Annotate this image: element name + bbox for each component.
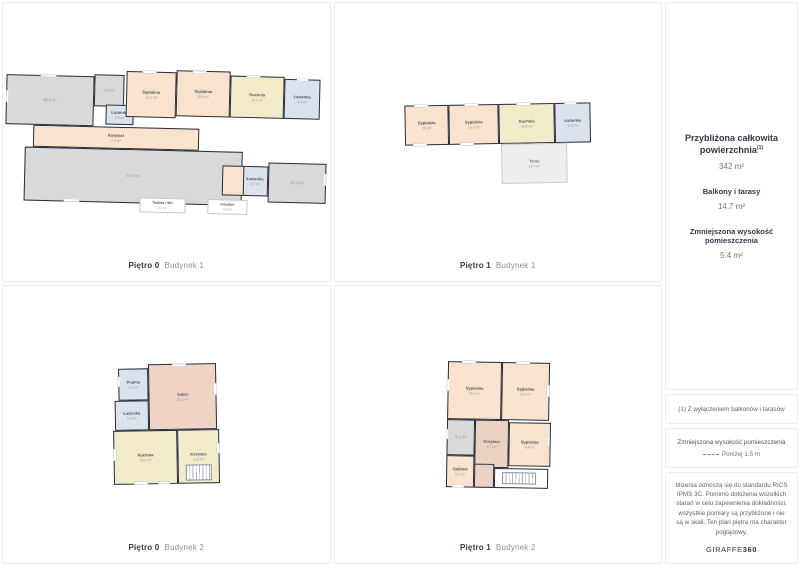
room-area: 13.5 m² xyxy=(468,125,480,130)
plan-caption: Piętro 0Budynek 1 xyxy=(3,261,330,270)
stairs-icon xyxy=(186,464,212,480)
footnote-card: (1) Z wyłączeniem balkonów i tarasów xyxy=(665,394,798,424)
legend-row: Poniżej 1.5 m xyxy=(703,451,760,458)
plan-caption: Piętro 1Budynek 1 xyxy=(335,261,662,270)
room-area: 2.9 m² xyxy=(115,115,125,120)
room-unlabeled: 38.6 m² xyxy=(6,74,95,126)
total-area-title-text: Przybliżona całkowita powierzchnia xyxy=(685,133,778,156)
room-area: 5.6 m² xyxy=(567,123,577,128)
plan-caption: Piętro 0Budynek 2 xyxy=(3,543,330,552)
room-area: 7.6 m² xyxy=(111,138,121,143)
floor-label: Piętro 0 xyxy=(128,543,159,552)
room-area: 13.2 m² xyxy=(251,97,263,102)
floor-label: Piętro 1 xyxy=(460,543,491,552)
disclaimer-card: blizenia odnoszą się do standardu RICS I… xyxy=(665,472,798,564)
total-area-value: 342 m² xyxy=(719,162,744,171)
window-marker xyxy=(446,379,449,391)
room-area: 5.1 m² xyxy=(455,435,466,440)
room-area: 14.0 m² xyxy=(468,391,480,396)
room-area: 8.7 m² xyxy=(486,445,496,450)
floorplan-cell-b1f1: Sypialnia16 m²Sypialnia13.5 m²Kuchnia18.… xyxy=(334,2,663,282)
room-kuchnia: Kuchnia18.5 m² xyxy=(113,430,178,485)
room-salon: Salon21.2 m² xyxy=(148,363,217,430)
window-marker xyxy=(564,101,576,104)
room-łazienka: Łazienka5.4 m² xyxy=(115,401,150,432)
floor-label: Piętro 1 xyxy=(460,261,491,270)
balconies-value: 14.7 m² xyxy=(718,202,745,211)
floorplan-canvas-b2f0: Pralnia4.1 m²Salon21.2 m²Łazienka5.4 m²K… xyxy=(112,363,220,485)
room-area: 3.2 m² xyxy=(223,207,232,211)
room-unlabeled: 4.2 m² xyxy=(94,74,125,107)
floorplan-canvas-b2f1: Sypialnia14.0 m²Sypialnia13.2 m²5.1 m²Ko… xyxy=(444,359,552,489)
room-callout: Korytarz3.2 m² xyxy=(208,199,248,215)
reduced-height-value: 5.4 m² xyxy=(720,251,743,260)
room-area: 5.2 m² xyxy=(455,472,465,477)
room-area: 5.9 m² xyxy=(194,457,204,462)
room-unlabeled: 23.3 m² xyxy=(268,162,327,203)
window-marker xyxy=(217,443,220,453)
stairs-icon xyxy=(502,472,536,485)
window-marker xyxy=(41,74,57,77)
room-area: 23.3 m² xyxy=(290,180,304,186)
room-kuchnia: Kuchnia13.2 m² xyxy=(230,75,285,118)
window-marker xyxy=(546,437,549,447)
window-marker xyxy=(464,103,478,106)
room-sypialnia: Sypialnia13.5 m² xyxy=(448,104,499,145)
floorplan-cell-b1f0: 38.6 m²4.2 m²Łazienka2.9 m²Sypialnia15.3… xyxy=(2,2,331,282)
floorplan-cell-b2f0: Pralnia4.1 m²Salon21.2 m²Łazienka5.4 m²K… xyxy=(2,285,331,565)
room-area: 16.8 m² xyxy=(197,94,209,99)
room-area: 21.2 m² xyxy=(177,397,189,402)
room-unlabeled xyxy=(222,165,245,196)
room-łazienka: Łazienka3.3 m² xyxy=(242,166,269,197)
room-sypialnia: Sypialnia9.4 m² xyxy=(508,422,551,467)
floorplan-canvas-b1f1: Sypialnia16 m²Sypialnia13.5 m²Kuchnia18.… xyxy=(404,98,591,185)
floor-label: Piętro 0 xyxy=(128,261,159,270)
room-area: 2.2 m² xyxy=(158,205,167,209)
room-unlabeled: 47.3 m² xyxy=(24,146,243,205)
room-unlabeled xyxy=(474,464,494,488)
floorplan-canvas-b1f0: 38.6 m²4.2 m²Łazienka2.9 m²Sypialnia15.3… xyxy=(4,66,329,218)
window-marker xyxy=(413,143,427,146)
room-sypialnia: Sypialnia15.3 m² xyxy=(126,71,177,118)
legend-card: Zmniejszona wysokość pomieszczenia Poniż… xyxy=(665,428,798,468)
legend-title: Zmniejszona wysokość pomieszczenia xyxy=(677,439,785,446)
room-area: 5.4 m² xyxy=(127,416,137,421)
room-area: 18.5 m² xyxy=(140,458,152,463)
room-kuchnia: Kuchnia18.8 m² xyxy=(498,103,555,144)
room-area: 4.1 m² xyxy=(129,385,139,390)
dashed-line-sample xyxy=(703,454,719,455)
window-marker xyxy=(193,70,207,73)
plan-caption: Piętro 1Budynek 2 xyxy=(335,543,662,552)
window-marker xyxy=(445,429,448,439)
room-korytarz: Korytarz8.7 m² xyxy=(474,420,509,469)
window-marker xyxy=(64,198,80,201)
room-area: 15.3 m² xyxy=(145,95,157,100)
building-label: Budynek 2 xyxy=(496,543,536,552)
total-area-title: Przybliżona całkowita powierzchnia(1) xyxy=(676,132,787,157)
plans-grid: 38.6 m²4.2 m²Łazienka2.9 m²Sypialnia15.3… xyxy=(2,2,662,564)
window-marker xyxy=(143,70,157,73)
window-marker xyxy=(297,78,309,81)
info-sidebar: Przybliżona całkowita powierzchnia(1) 34… xyxy=(665,2,798,564)
reduced-height-label: Zmniejszona wysokość pomieszczenia xyxy=(676,227,787,247)
window-marker xyxy=(516,102,530,105)
building-label: Budynek 1 xyxy=(164,261,204,270)
disclaimer-text: blizenia odnoszą się do standardu RICS I… xyxy=(675,481,788,538)
building-label: Budynek 2 xyxy=(164,543,204,552)
giraffe360-logo: GIRAFFE360 xyxy=(706,544,757,555)
building-label: Budynek 1 xyxy=(496,261,536,270)
window-marker xyxy=(214,383,217,395)
room-unlabeled: 5.1 m² xyxy=(446,419,475,455)
room-area: 9.4 m² xyxy=(524,445,534,450)
room-area: 16 m² xyxy=(422,125,431,130)
floorplan-cell-b2f1: Sypialnia14.0 m²Sypialnia13.2 m²5.1 m²Ko… xyxy=(334,285,663,565)
room-sypialnia: Sypialnia16 m² xyxy=(404,105,449,146)
balconies-label: Balkony i tarasy xyxy=(703,187,761,197)
room-pralnia: Pralnia4.1 m² xyxy=(118,369,149,402)
room-area: 38.6 m² xyxy=(43,97,57,103)
brand-name: GIRAFFE xyxy=(706,545,743,554)
room-sypialnia: Sypialnia13.2 m² xyxy=(501,362,550,421)
room-area: 4.2 m² xyxy=(104,88,115,93)
room-area: 3.3 m² xyxy=(250,181,260,186)
room-łazienka: Łazienka4.3 m² xyxy=(284,79,321,120)
room-area: 14.7 m² xyxy=(528,164,540,169)
floorplan-sheet: 38.6 m²4.2 m²Łazienka2.9 m²Sypialnia15.3… xyxy=(2,2,798,564)
area-summary-card: Przybliżona całkowita powierzchnia(1) 34… xyxy=(665,2,798,390)
window-marker xyxy=(546,385,549,397)
window-marker xyxy=(460,142,474,145)
room-callout: Toaleta / WC2.2 m² xyxy=(140,197,186,213)
brand-suffix: 360 xyxy=(743,545,757,554)
room-gabinet: Gabinet5.2 m² xyxy=(446,455,475,487)
room-area: 13.2 m² xyxy=(519,392,531,397)
room-łazienka: Łazienka5.6 m² xyxy=(554,102,591,143)
footnote-text: (1) Z wyłączeniem balkonów i tarasów xyxy=(678,406,784,413)
room-area: 4.3 m² xyxy=(297,99,307,104)
window-marker xyxy=(414,104,428,107)
window-marker xyxy=(117,377,120,387)
room-taras: Taras14.7 m² xyxy=(501,143,568,184)
window-marker xyxy=(114,449,117,461)
room-sypialnia: Sypialnia14.0 m² xyxy=(447,361,502,420)
room-area: 18.8 m² xyxy=(521,124,533,129)
room-sypialnia: Sypialnia16.8 m² xyxy=(176,70,231,117)
room-area: 47.3 m² xyxy=(127,173,141,179)
window-marker xyxy=(247,75,261,78)
legend-value: Poniżej 1.5 m xyxy=(722,451,760,458)
footnote-marker: (1) xyxy=(757,145,763,151)
